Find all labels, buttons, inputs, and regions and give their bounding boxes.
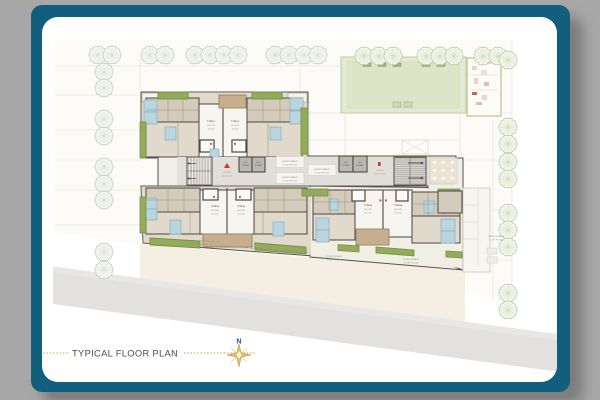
svg-text:TYPE-2: TYPE-2 <box>207 121 215 123</box>
svg-text:LOBBY: LOBBY <box>255 165 263 167</box>
svg-text:A-1 SQ: A-1 SQ <box>208 128 215 131</box>
svg-text:LOBBY: LOBBY <box>342 165 350 167</box>
svg-text:A-1 SQ: A-1 SQ <box>232 128 239 131</box>
svg-text:TYPICAL FLOOR PLAN: TYPICAL FLOOR PLAN <box>72 348 178 359</box>
svg-text:A-101/B: A-101/B <box>394 208 402 211</box>
svg-text:A-101/B: A-101/B <box>207 124 215 127</box>
svg-text:@ 1ST FLOOR: @ 1ST FLOOR <box>404 263 419 265</box>
svg-text:A-1 SQ: A-1 SQ <box>365 212 372 215</box>
svg-text:OPEN TERRACE: OPEN TERRACE <box>326 255 343 258</box>
svg-text:FOYER: FOYER <box>376 170 384 172</box>
svg-text:A-104/B: A-104/B <box>211 209 219 212</box>
svg-text:TYPE-A: TYPE-A <box>364 204 372 207</box>
svg-text:A-1 SQ: A-1 SQ <box>238 213 245 216</box>
svg-text:A-102/B: A-102/B <box>364 208 372 211</box>
svg-text:A-102/B: A-102/B <box>231 124 239 127</box>
svg-text:A-103/B: A-103/B <box>237 209 245 212</box>
svg-text:TYPE-A: TYPE-A <box>237 205 245 208</box>
svg-text:TYPE-A: TYPE-A <box>211 205 219 208</box>
svg-text:OPEN TERRACE: OPEN TERRACE <box>488 235 505 238</box>
svg-text:TYPE-A: TYPE-A <box>394 204 402 207</box>
svg-text:LOBBY: LOBBY <box>242 165 250 167</box>
svg-text:12-0 X 20-0: 12-0 X 20-0 <box>222 176 234 178</box>
svg-text:LIFT: LIFT <box>243 162 248 164</box>
svg-text:A-1 SQ: A-1 SQ <box>212 213 219 216</box>
svg-text:OPEN TERRACE: OPEN TERRACE <box>403 258 420 261</box>
svg-text:OPEN TERRACE: OPEN TERRACE <box>282 160 299 163</box>
svg-text:@ 1ST FLOOR: @ 1ST FLOOR <box>327 260 342 262</box>
svg-text:@ 1ST FLOOR: @ 1ST FLOOR <box>283 165 298 167</box>
svg-text:LIFT: LIFT <box>344 162 349 164</box>
svg-text:OPEN TERRACE: OPEN TERRACE <box>282 176 299 179</box>
svg-text:LIFT: LIFT <box>256 162 261 164</box>
svg-text:LOBBY: LOBBY <box>356 165 364 167</box>
svg-text:A-1 SQ: A-1 SQ <box>395 212 402 215</box>
svg-text:OPEN TERRACE: OPEN TERRACE <box>314 168 331 171</box>
svg-text:LIFT: LIFT <box>358 162 363 164</box>
svg-text:@ 1ST FLOOR: @ 1ST FLOOR <box>283 181 298 183</box>
svg-text:12-0 X 20-0: 12-0 X 20-0 <box>375 174 387 176</box>
svg-text:@ 1ST FLOOR: @ 1ST FLOOR <box>315 173 330 175</box>
svg-text:FOYER: FOYER <box>223 172 231 174</box>
svg-text:@ 1ST FLOOR: @ 1ST FLOOR <box>489 240 504 242</box>
svg-text:TYPE-2: TYPE-2 <box>231 121 239 123</box>
